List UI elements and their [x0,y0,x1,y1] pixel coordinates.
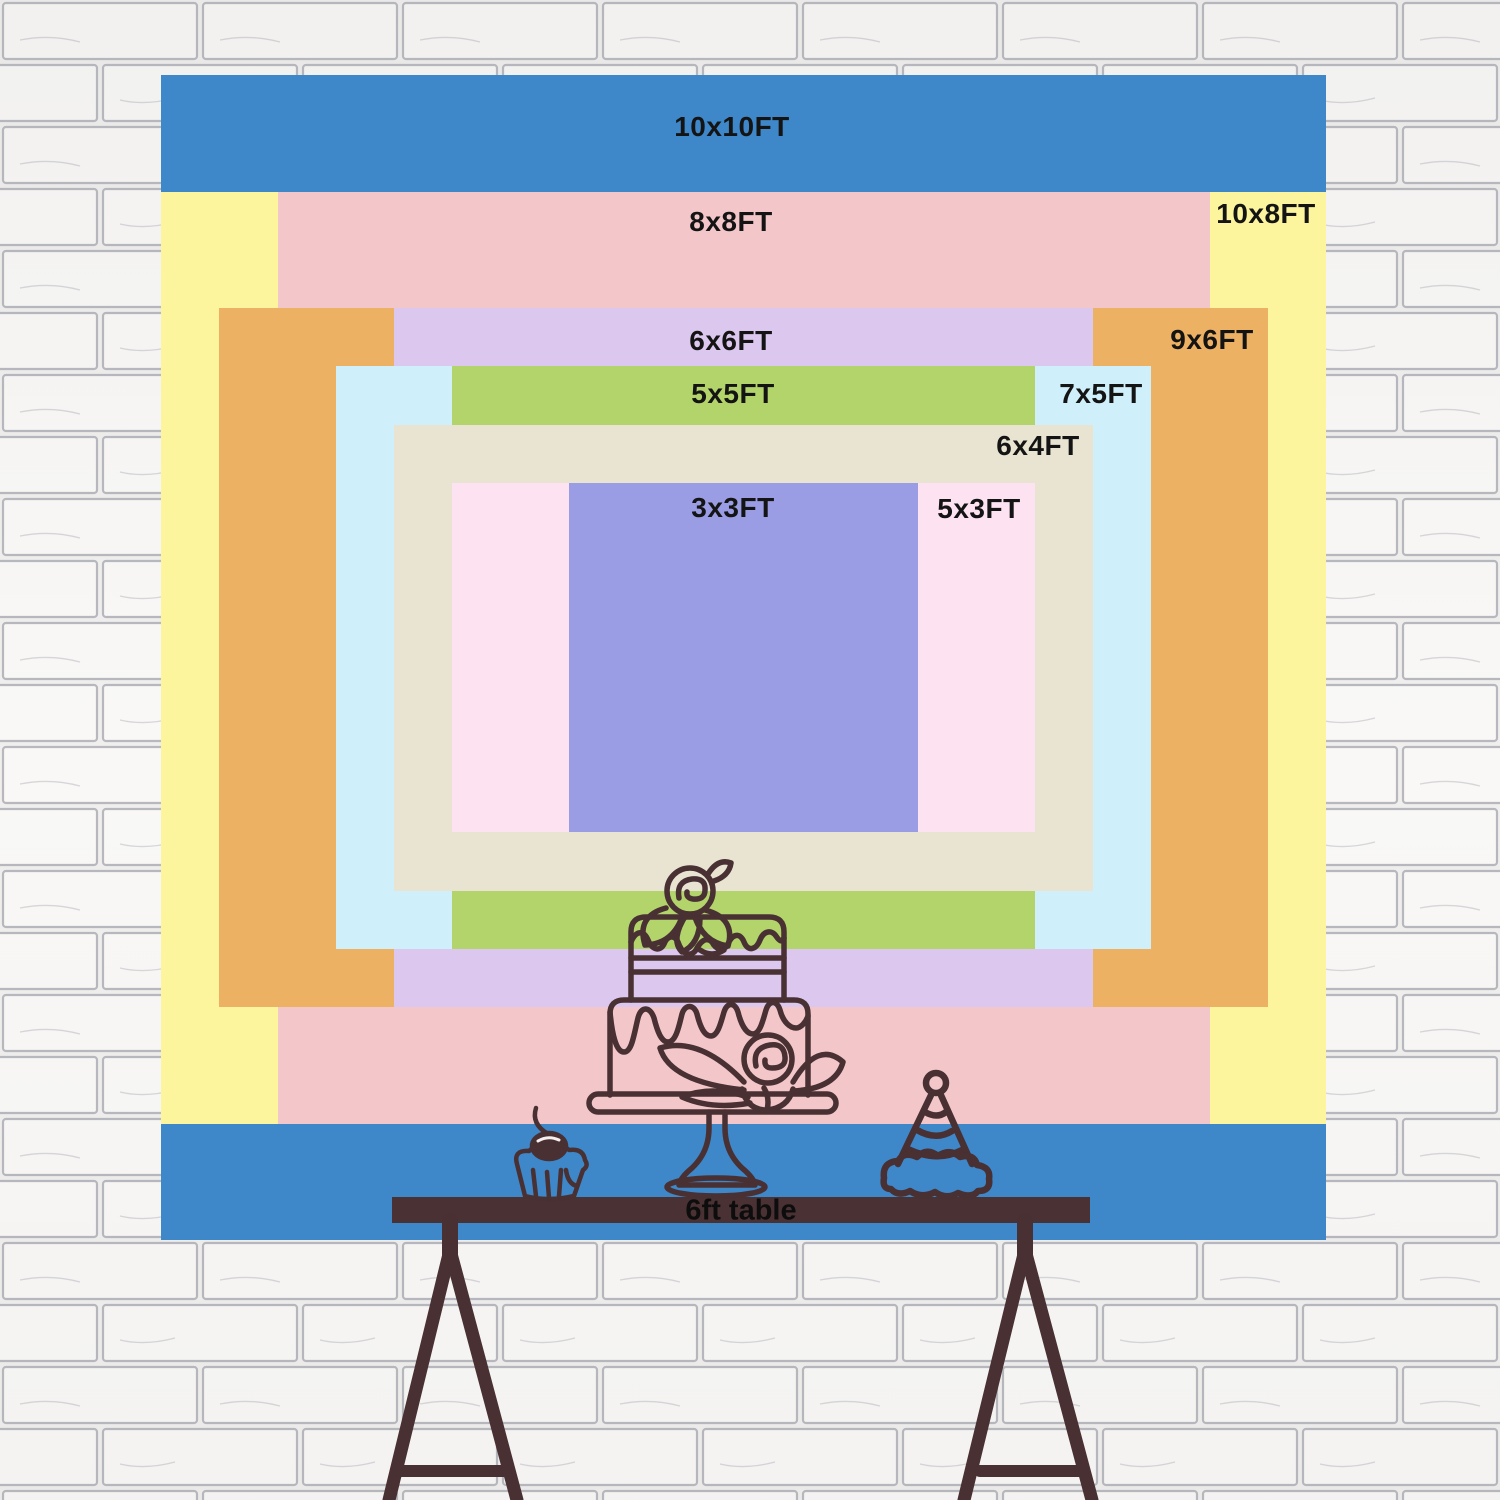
table-trestle-left [389,1221,517,1500]
cupcake-cherry-stem [535,1108,548,1134]
backdrop-size-chart-scene: 10x10FT10x8FT8x8FT9x6FT6x6FT7x5FT5x5FT6x… [0,0,1500,1500]
party-hat-pompom [926,1073,946,1093]
tiered-cake-illustration [589,862,843,1196]
cake-top-squiggle [700,950,724,954]
cake-top-rose-spiral [679,879,706,899]
cupcake-pleat1 [533,1170,536,1196]
party-hat-scallop [884,1152,990,1197]
table-label: 6ft table [685,1195,796,1228]
party-hat-stripe2 [917,1130,952,1136]
table-trestle-right [964,1221,1092,1500]
cupcake-pleat3 [559,1170,561,1196]
table-illustration [389,1197,1092,1500]
cupcake-pleat2 [547,1172,549,1198]
party-hat-stripe1 [925,1112,946,1116]
cake-bottom-leaf-right [793,1054,843,1091]
cupcake-drip [566,1170,577,1186]
cake-stand-stem [679,1112,755,1185]
cake-bottom-leaf-left [660,1046,744,1090]
props-illustration [0,0,1500,1500]
party-hat-illustration [884,1073,990,1196]
cake-bottom-leaf-left2 [682,1091,750,1105]
cupcake-illustration [516,1108,586,1199]
cake-bottom-rose-spiral [755,1045,785,1068]
